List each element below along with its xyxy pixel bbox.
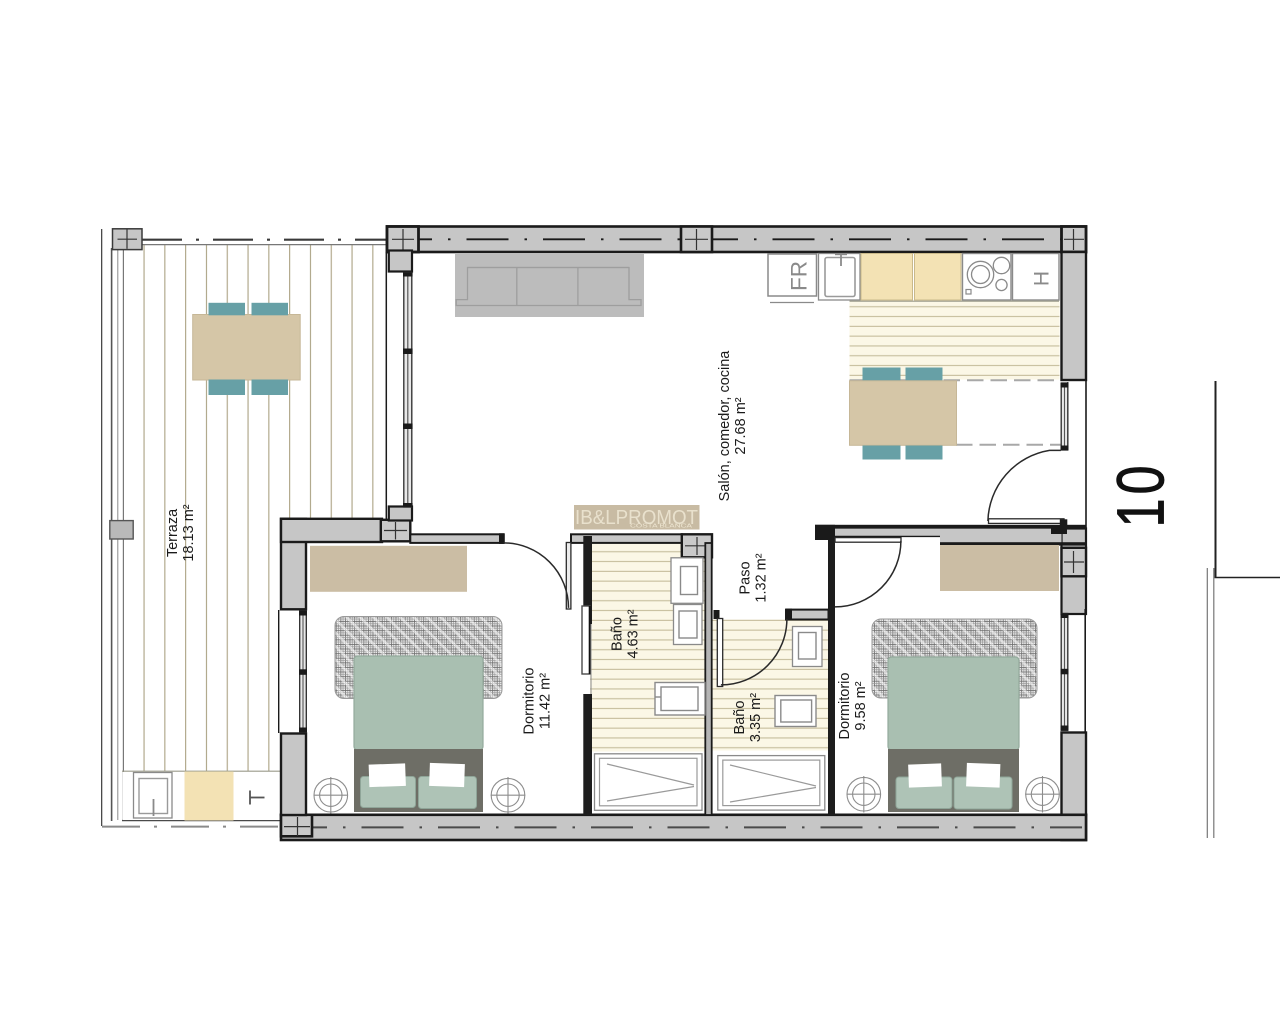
svg-text:1.32 m²: 1.32 m² xyxy=(754,553,770,602)
svg-text:10: 10 xyxy=(1103,462,1178,528)
svg-text:Terraza: Terraza xyxy=(165,508,181,557)
svg-text:Dormitorio: Dormitorio xyxy=(522,668,538,735)
svg-text:Dormitorio: Dormitorio xyxy=(837,673,853,740)
svg-text:Baño: Baño xyxy=(610,617,626,651)
svg-text:11.42 m²: 11.42 m² xyxy=(538,673,554,729)
svg-text:H: H xyxy=(1031,271,1054,286)
svg-text:Paso: Paso xyxy=(738,561,754,594)
svg-text:FR: FR xyxy=(786,261,811,291)
svg-text:3.35 m²: 3.35 m² xyxy=(748,693,764,742)
svg-text:9.58 m²: 9.58 m² xyxy=(853,681,869,730)
svg-text:Salón, comedor, cocina: Salón, comedor, cocina xyxy=(717,350,733,502)
svg-text:Baño: Baño xyxy=(732,701,748,735)
svg-text:COSTA BLANCA: COSTA BLANCA xyxy=(630,524,692,530)
svg-text:18.13 m²: 18.13 m² xyxy=(181,504,197,561)
svg-text:27.68 m²: 27.68 m² xyxy=(733,397,749,454)
svg-text:4.63 m²: 4.63 m² xyxy=(626,609,642,658)
